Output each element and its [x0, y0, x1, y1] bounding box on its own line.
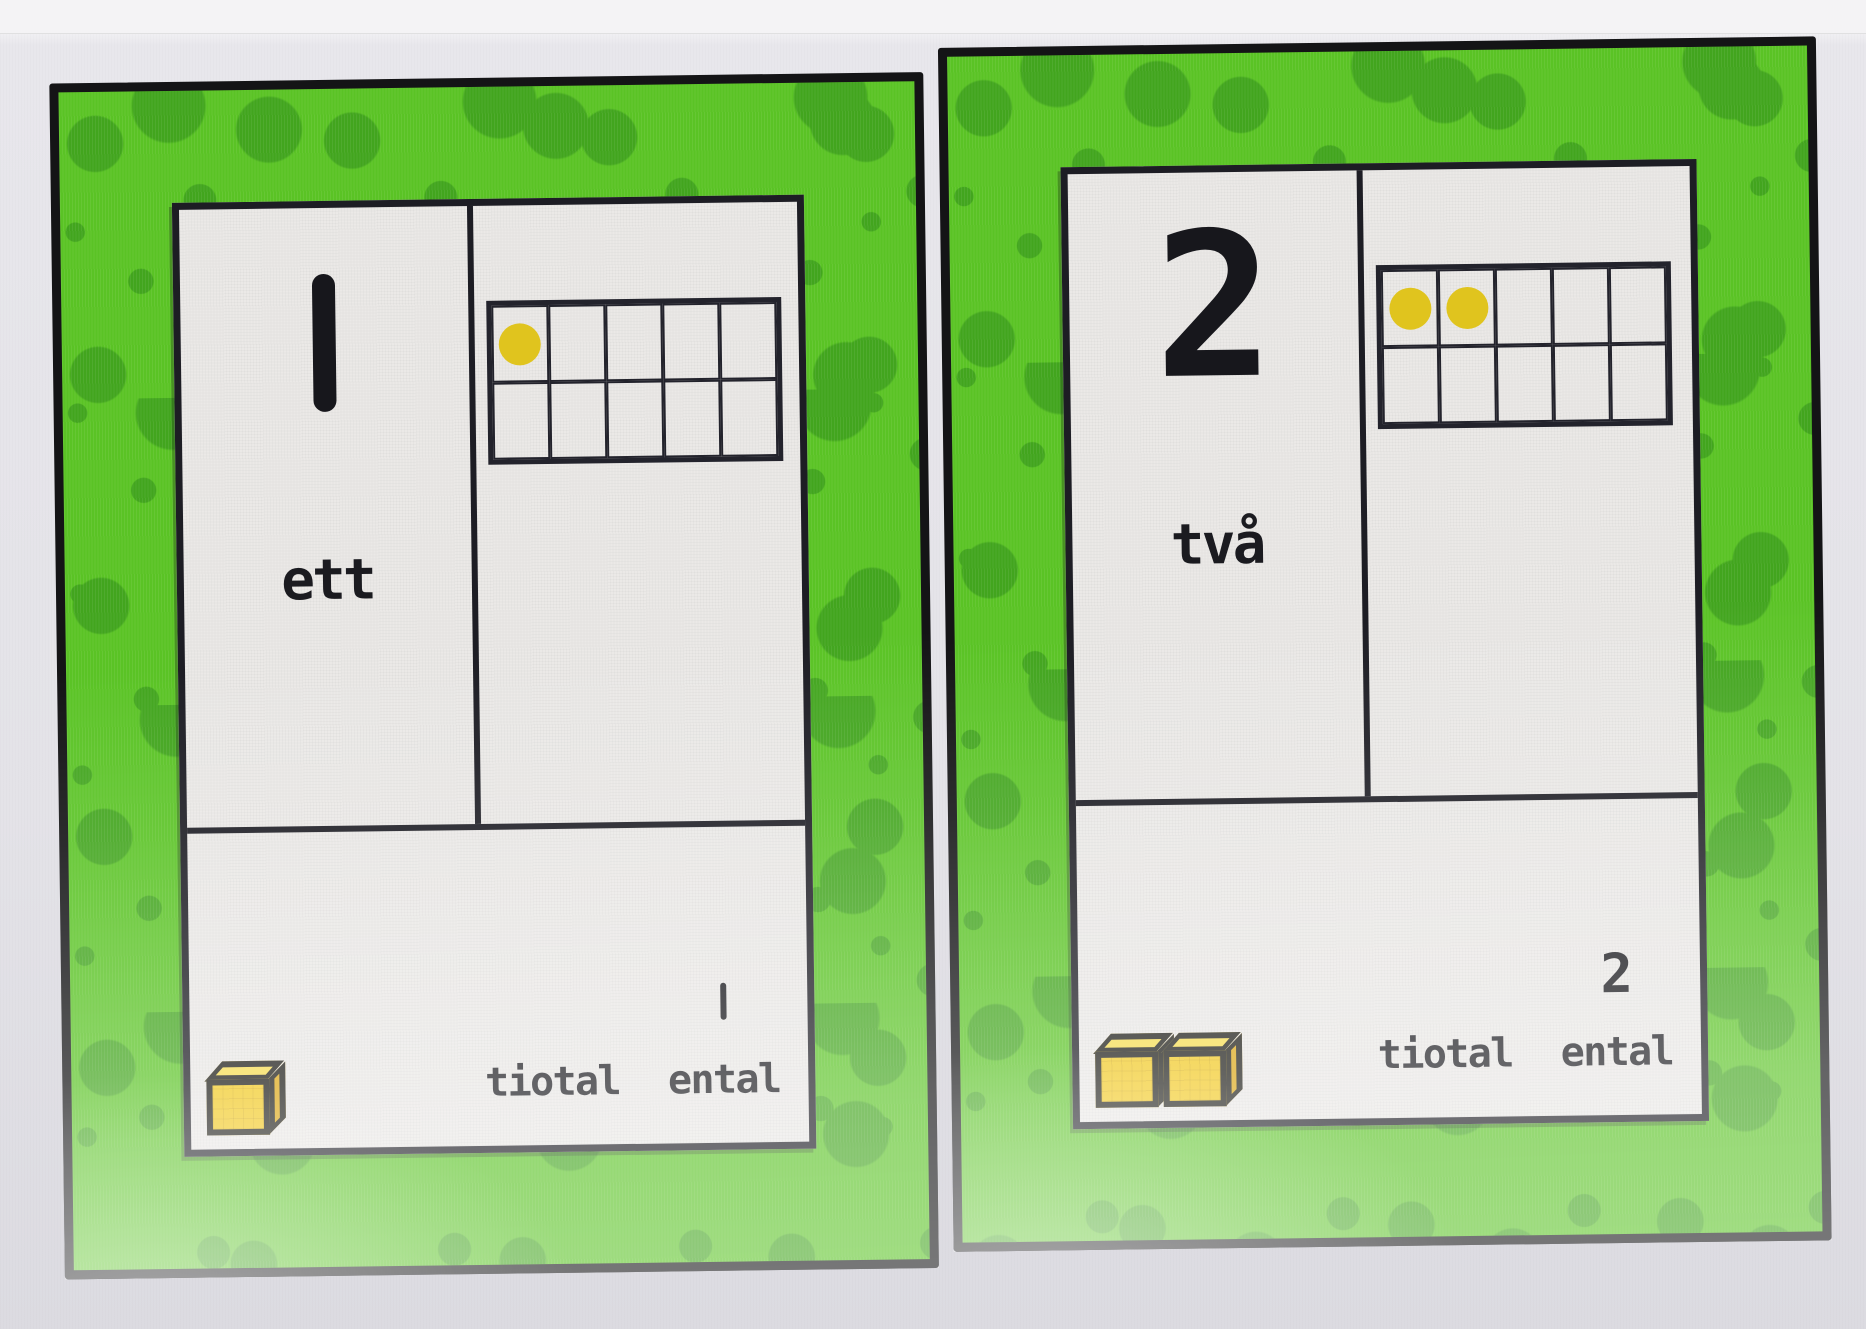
unit-cubes [206, 1061, 287, 1136]
unit-cubes [1095, 1032, 1244, 1108]
ten-frame-cell [662, 303, 720, 381]
ten-frame-cell [492, 382, 550, 460]
counter-dot [1446, 286, 1489, 329]
ten-frame-cell [605, 304, 663, 382]
big-numeral: 2 [1152, 202, 1275, 414]
place-value-labels: tiotal 2 ental [1376, 946, 1673, 1078]
tens-label: tiotal [485, 1058, 620, 1106]
ten-frame-cell [491, 305, 549, 383]
ten-frame [1376, 261, 1673, 429]
ten-frame-cell [719, 302, 777, 380]
numeral-section: 2 två [1068, 170, 1372, 800]
ten-frame-cell [549, 381, 607, 459]
ones-column: 2 ental [1559, 946, 1673, 1075]
ten-frame-cell [1382, 346, 1440, 424]
tens-label: tiotal [1378, 1030, 1513, 1078]
counter-dot [499, 323, 542, 366]
number-card-1: ett tiotal ental [49, 72, 939, 1279]
card-face: 2 två tiotal 2 ental [1061, 159, 1710, 1129]
unit-cube-icon [1163, 1032, 1244, 1107]
ten-frame-cell [1609, 266, 1667, 344]
ones-digit: 2 [1600, 947, 1632, 1001]
ten-frame-cell [1610, 343, 1668, 421]
ones-digit [720, 975, 727, 1029]
ten-frame-section [1363, 166, 1698, 796]
cube-front-face [206, 1079, 270, 1136]
ten-frame-cell [1553, 344, 1611, 422]
ten-frame-cell [1438, 269, 1496, 347]
number-word: två [1170, 512, 1264, 578]
cube-front-face [1163, 1050, 1227, 1107]
ten-frame-cell [663, 380, 721, 458]
cube-front-face [1095, 1051, 1159, 1108]
ones-column: ental [667, 974, 781, 1103]
ten-frame-cell [606, 381, 664, 459]
worksheet: ett tiotal ental [0, 0, 1866, 1329]
ten-frame [486, 297, 783, 465]
counter-dot [1389, 287, 1432, 330]
screen-photo: ett tiotal ental [0, 0, 1866, 1329]
ones-label: ental [1560, 1028, 1673, 1075]
numeral-section: ett [179, 206, 481, 828]
ones-label: ental [668, 1056, 781, 1103]
digit-one-bar [720, 982, 727, 1019]
place-value-section: tiotal ental [187, 820, 809, 1150]
unit-cube-icon [206, 1061, 287, 1136]
place-value-section: tiotal 2 ental [1076, 792, 1702, 1122]
ten-frame-section [473, 202, 805, 824]
big-numeral [312, 238, 338, 448]
ten-frame-cell [1381, 269, 1439, 347]
number-card-2: 2 två tiotal 2 ental [938, 36, 1832, 1251]
ten-frame-cell [1496, 345, 1554, 423]
ten-frame-cell [1495, 268, 1553, 346]
ten-frame-cell [1439, 346, 1497, 424]
number-word: ett [281, 547, 375, 613]
ten-frame-cell [1552, 267, 1610, 345]
digit-one-bar [312, 274, 337, 412]
place-value-labels: tiotal ental [484, 974, 781, 1106]
card-face: ett tiotal ental [172, 195, 816, 1157]
ten-frame-cell [548, 304, 606, 382]
ten-frame-cell [720, 379, 778, 457]
